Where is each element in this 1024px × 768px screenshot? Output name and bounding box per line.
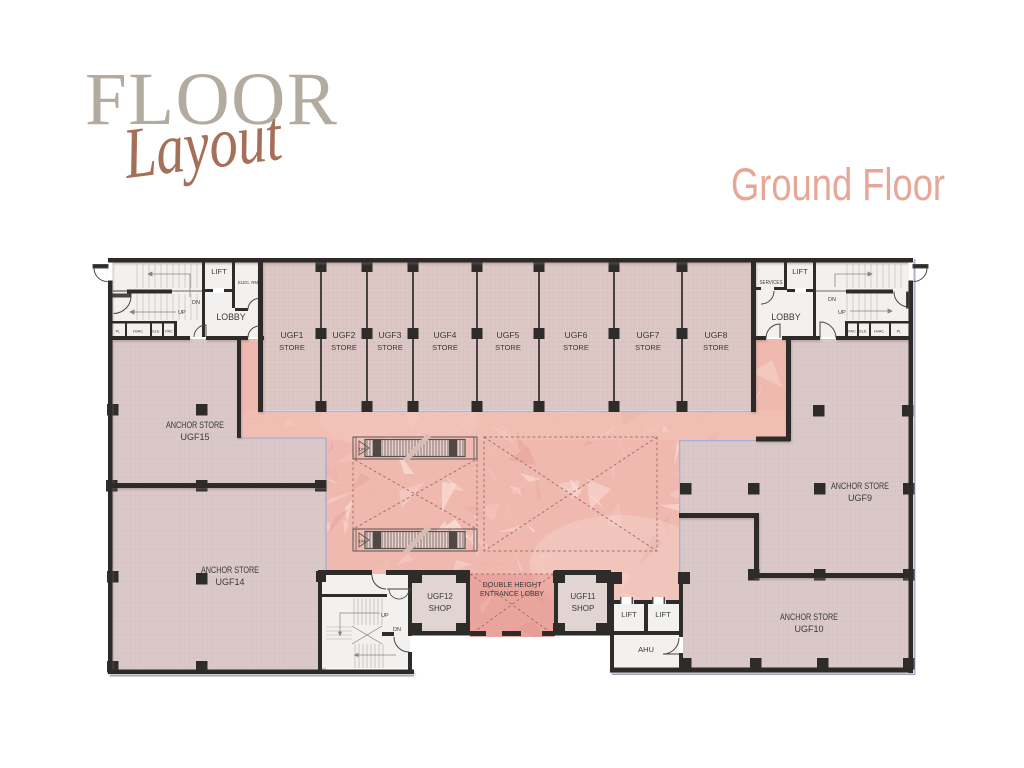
svg-text:DN: DN	[192, 300, 200, 306]
svg-text:UP: UP	[359, 447, 365, 452]
svg-text:UP: UP	[178, 310, 186, 316]
svg-text:STORE: STORE	[331, 343, 357, 352]
svg-text:STORE: STORE	[563, 343, 589, 352]
svg-text:HVAC: HVAC	[874, 330, 885, 334]
svg-text:LIFT: LIFT	[211, 267, 227, 276]
svg-text:PL: PL	[897, 330, 902, 334]
svg-text:PL: PL	[116, 330, 121, 334]
svg-text:UGF9: UGF9	[848, 493, 872, 503]
svg-text:UGF7: UGF7	[637, 330, 660, 340]
svg-text:LIFT: LIFT	[655, 610, 671, 619]
svg-text:STORE: STORE	[377, 343, 403, 352]
svg-text:UGF15: UGF15	[180, 432, 209, 442]
svg-text:LIFT: LIFT	[792, 267, 808, 276]
svg-text:STORE: STORE	[279, 343, 305, 352]
svg-text:SHOP: SHOP	[429, 604, 452, 613]
svg-text:ELE: ELE	[152, 330, 160, 334]
svg-text:UGF2: UGF2	[333, 330, 356, 340]
svg-text:DN: DN	[828, 297, 836, 303]
svg-text:LIFT: LIFT	[621, 610, 637, 619]
svg-text:LOBBY: LOBBY	[216, 312, 245, 322]
svg-text:LOBBY: LOBBY	[771, 312, 800, 322]
svg-text:ANCHOR STORE: ANCHOR STORE	[166, 420, 224, 430]
svg-text:UGF5: UGF5	[497, 330, 520, 340]
svg-text:UGF6: UGF6	[565, 330, 588, 340]
svg-text:DOUBLE HEIGHT: DOUBLE HEIGHT	[483, 580, 542, 589]
svg-text:UGF14: UGF14	[215, 577, 244, 587]
svg-text:Ground Floor: Ground Floor	[731, 159, 945, 210]
svg-text:PAC: PAC	[848, 330, 856, 334]
svg-text:ANCHOR STORE: ANCHOR STORE	[201, 565, 259, 575]
svg-text:UGF3: UGF3	[379, 330, 402, 340]
svg-text:STORE: STORE	[703, 343, 729, 352]
svg-text:ELE: ELE	[859, 330, 867, 334]
svg-text:SHOP: SHOP	[572, 604, 595, 613]
svg-text:ENTRANCE LOBBY: ENTRANCE LOBBY	[480, 589, 544, 598]
svg-text:AHU: AHU	[638, 645, 654, 654]
svg-text:DN: DN	[393, 627, 401, 633]
svg-text:UGF11: UGF11	[570, 592, 596, 601]
svg-text:ANCHOR STORE: ANCHOR STORE	[831, 481, 889, 491]
svg-text:HVAC: HVAC	[133, 330, 144, 334]
svg-text:STORE: STORE	[432, 343, 458, 352]
svg-text:ANCHOR STORE: ANCHOR STORE	[780, 612, 838, 622]
svg-text:ELEC. RM: ELEC. RM	[238, 280, 258, 285]
svg-text:UP: UP	[838, 310, 846, 316]
svg-text:UGF12: UGF12	[427, 592, 453, 601]
svg-text:SERVICES: SERVICES	[760, 280, 784, 286]
svg-text:STORE: STORE	[635, 343, 661, 352]
svg-text:PAC: PAC	[165, 330, 173, 334]
svg-text:STORE: STORE	[495, 343, 521, 352]
svg-text:UGF1: UGF1	[281, 330, 304, 340]
svg-text:UGF10: UGF10	[794, 624, 823, 634]
svg-text:UP: UP	[381, 613, 389, 619]
svg-text:UGF4: UGF4	[434, 330, 457, 340]
svg-text:UGF8: UGF8	[705, 330, 728, 340]
svg-text:DN: DN	[359, 539, 365, 544]
